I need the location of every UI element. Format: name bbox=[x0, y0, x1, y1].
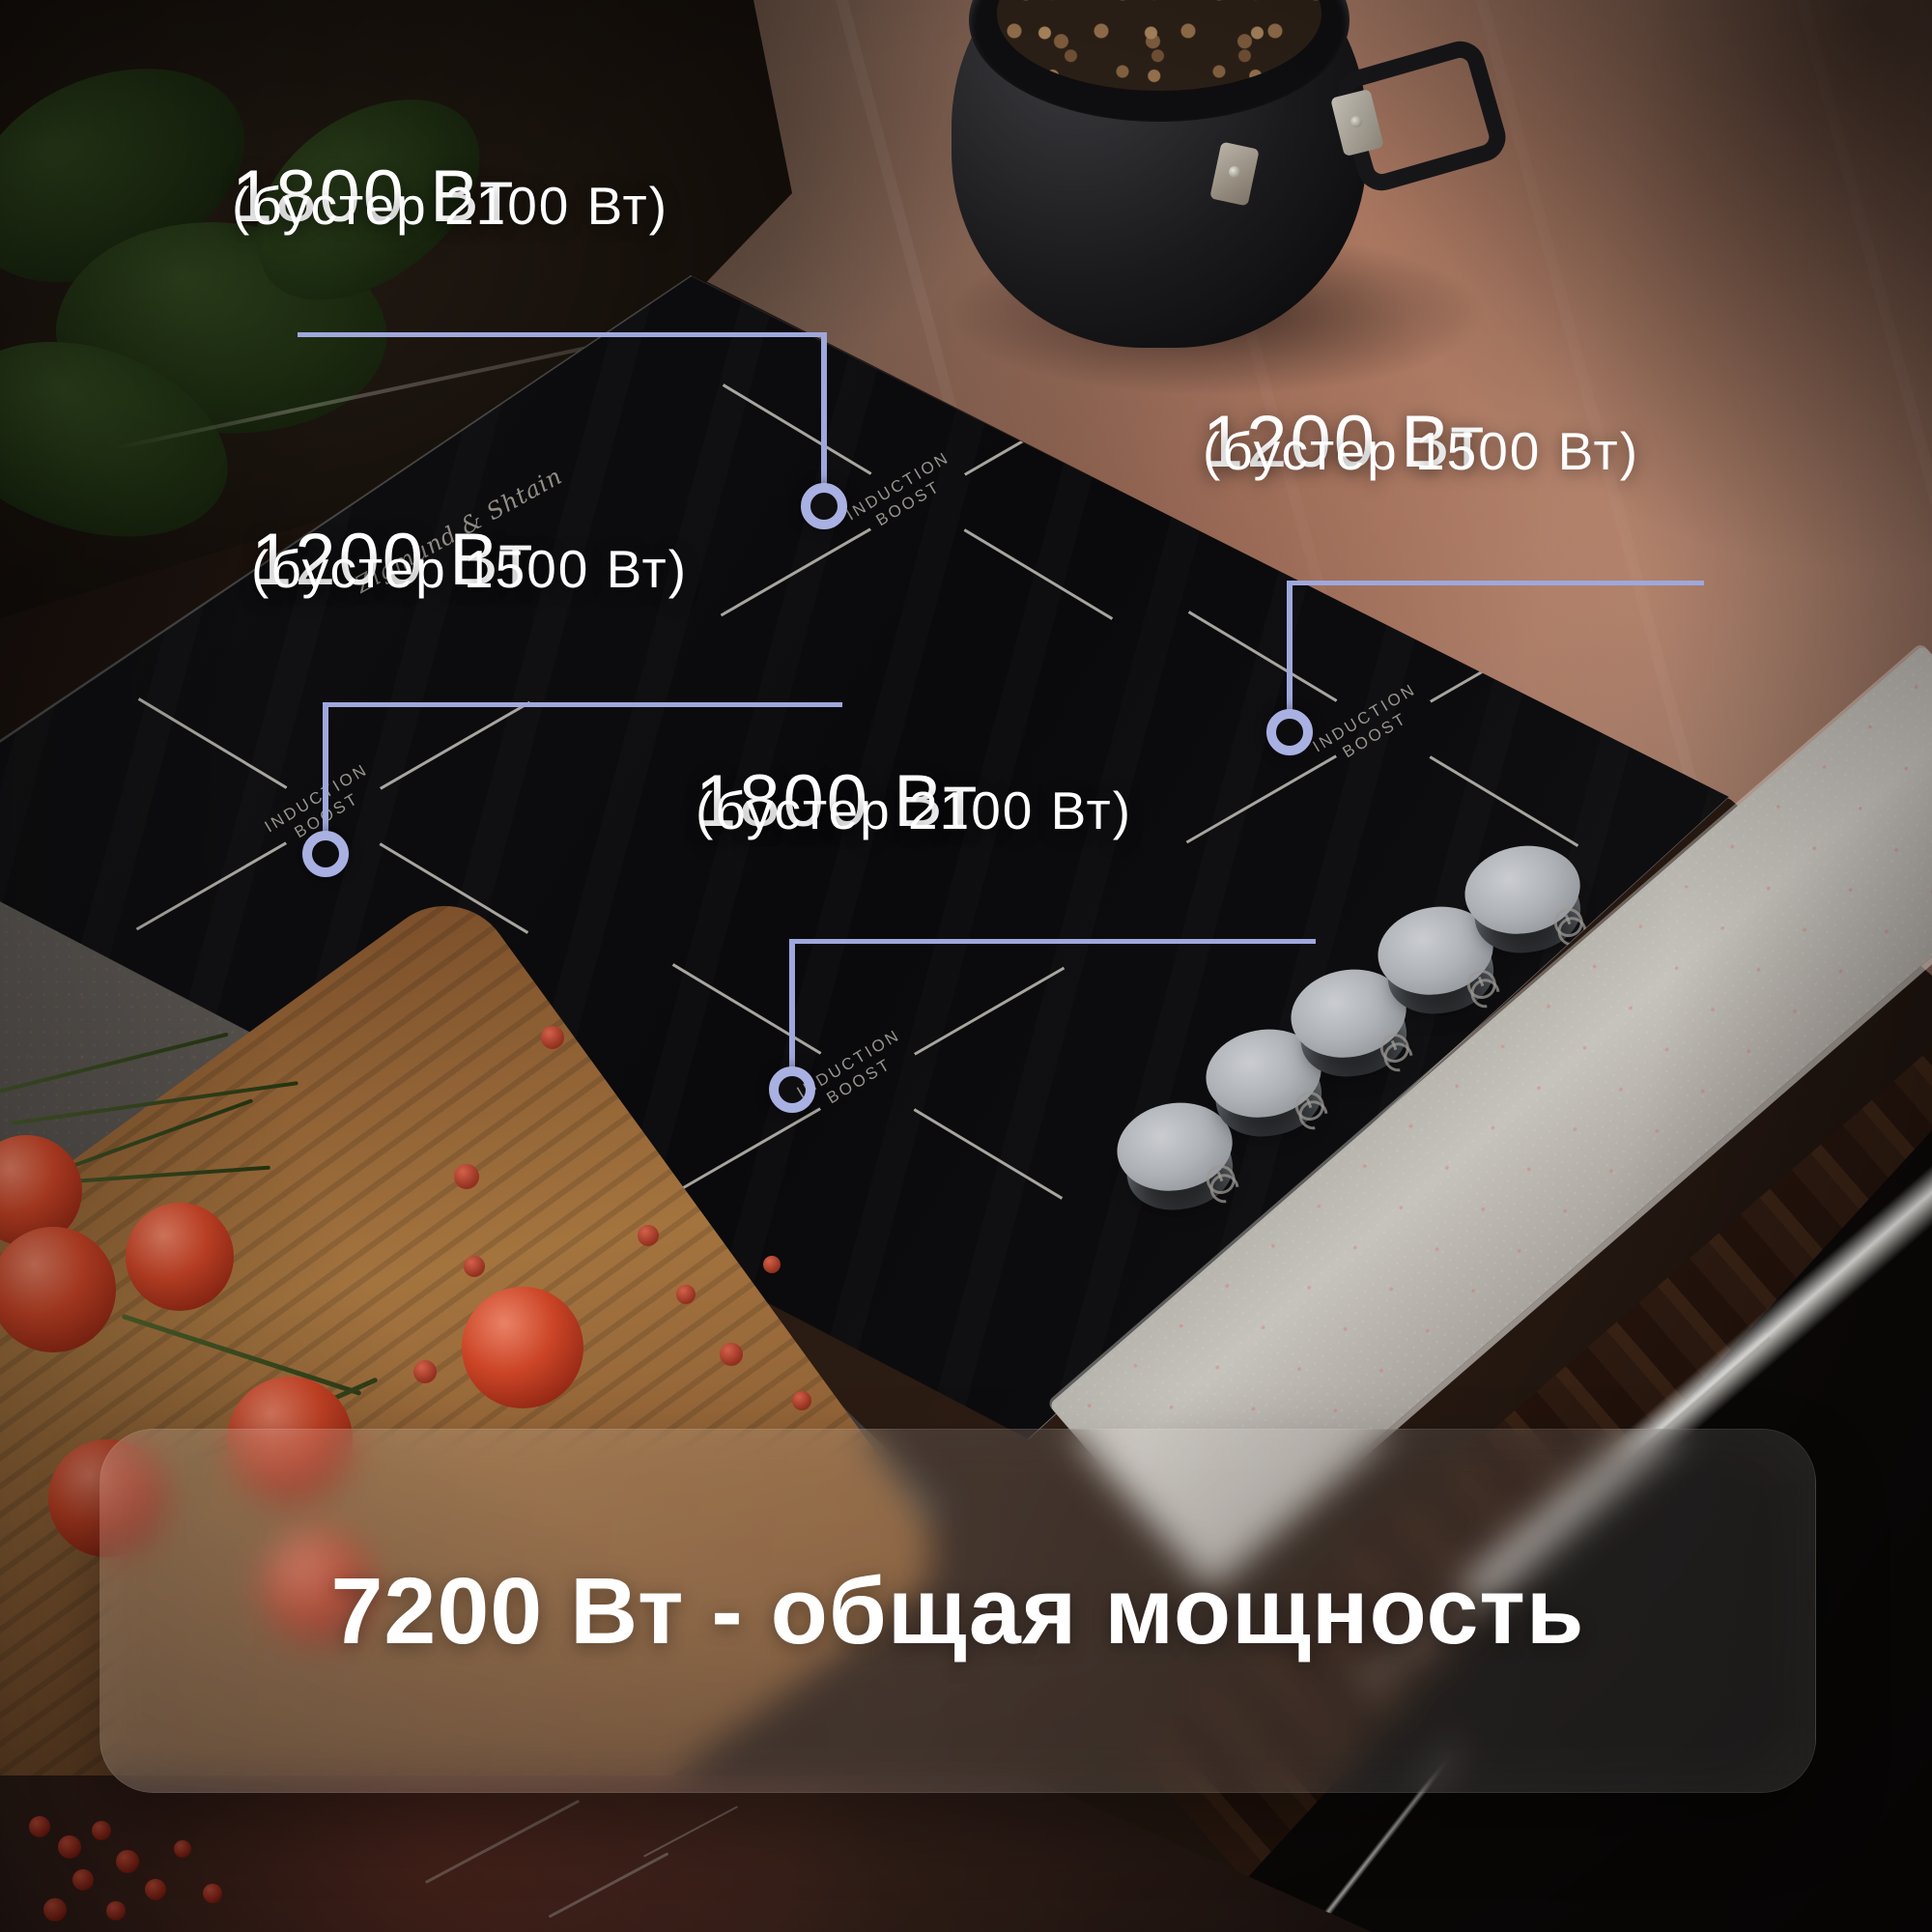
total-power-text: 7200 Вт - общая мощность bbox=[330, 1557, 1584, 1665]
kitchen-scene: Zigmund & Shtain INDUCTION BOOST INDUCTI… bbox=[0, 0, 1932, 1932]
callout-circle-bottom-burner bbox=[769, 1066, 815, 1113]
callout-line-right bbox=[1287, 581, 1704, 585]
peppercorn bbox=[720, 1343, 743, 1366]
induction-boost-marking-top: INDUCTION BOOST bbox=[842, 447, 964, 543]
pot-rivet bbox=[1350, 116, 1362, 128]
peppercorn bbox=[541, 1026, 564, 1049]
red-berry bbox=[72, 1869, 94, 1890]
callout-line-bottom bbox=[789, 939, 795, 1068]
red-berry bbox=[116, 1850, 139, 1873]
tomato bbox=[126, 1203, 234, 1311]
red-berry bbox=[174, 1840, 191, 1858]
callout-line-bottom bbox=[792, 939, 1316, 944]
peppercorn bbox=[638, 1225, 659, 1246]
boost-value: (бустер 1500 Вт) bbox=[1203, 424, 1639, 478]
red-berry bbox=[29, 1816, 50, 1837]
red-berry bbox=[203, 1884, 222, 1903]
peppercorn bbox=[763, 1256, 781, 1273]
callout-line-left bbox=[323, 702, 328, 833]
red-berry bbox=[58, 1835, 81, 1859]
induction-boost-marking-bottom: INDUCTION BOOST bbox=[793, 1025, 915, 1121]
callout-line-top bbox=[821, 332, 827, 485]
red-berry bbox=[106, 1901, 126, 1920]
callout-line-left bbox=[323, 702, 842, 707]
callout-circle-top-burner bbox=[801, 483, 847, 529]
red-berry bbox=[43, 1898, 67, 1921]
tomato bbox=[462, 1287, 583, 1408]
peppercorn bbox=[464, 1256, 485, 1277]
peppercorn bbox=[792, 1391, 811, 1410]
red-berry bbox=[92, 1821, 111, 1840]
callout-circle-left-burner bbox=[302, 831, 349, 877]
pot-rivet bbox=[1229, 166, 1240, 178]
boost-value: (бустер 2100 Вт) bbox=[696, 783, 1132, 838]
peppercorn bbox=[676, 1285, 696, 1304]
peppercorn bbox=[454, 1164, 479, 1189]
peppercorn bbox=[413, 1360, 437, 1383]
total-power-banner: 7200 Вт - общая мощность bbox=[99, 1429, 1816, 1793]
red-berry bbox=[145, 1879, 166, 1900]
callout-circle-right-burner bbox=[1266, 709, 1313, 755]
boost-value: (бустер 2100 Вт) bbox=[232, 179, 668, 233]
callout-line-top bbox=[298, 332, 827, 337]
callout-line-right bbox=[1287, 581, 1293, 711]
boost-value: (бустер 1500 Вт) bbox=[251, 542, 688, 596]
